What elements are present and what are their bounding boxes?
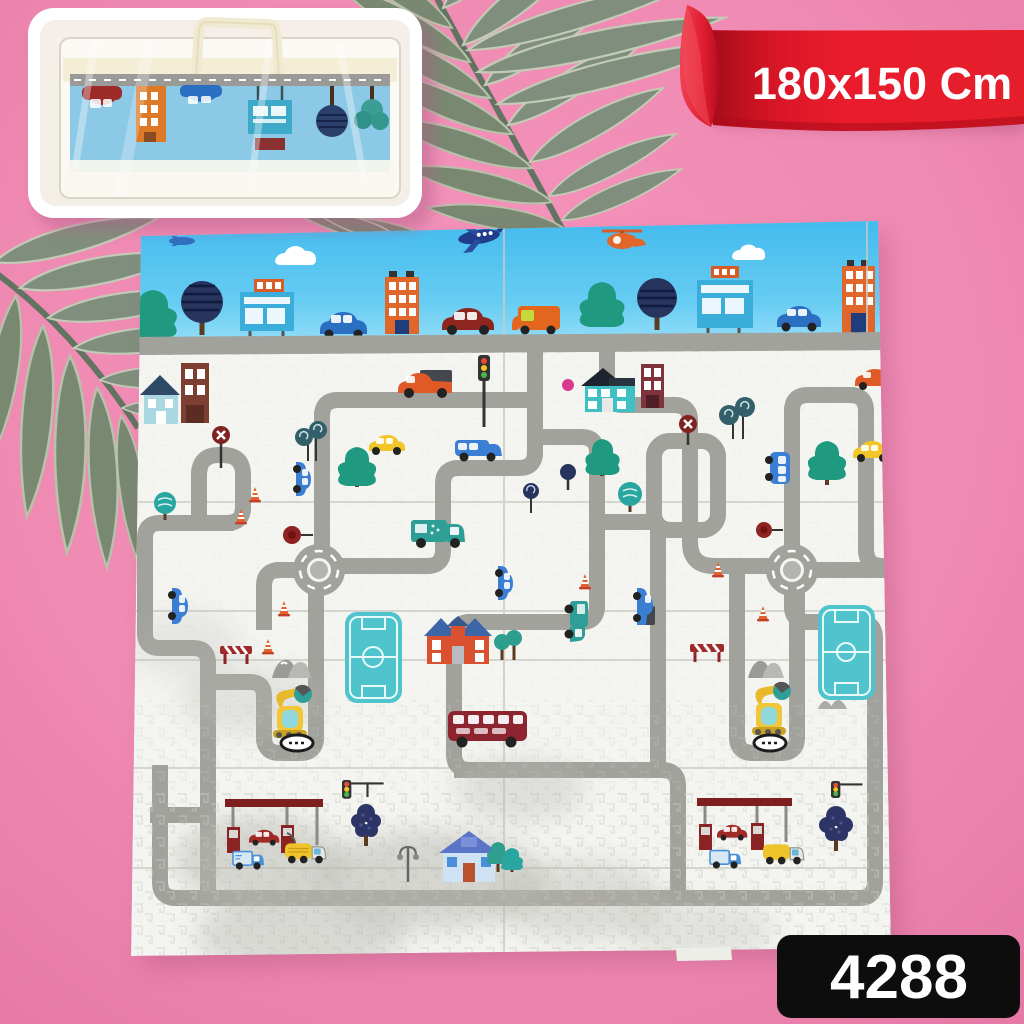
svg-text:180x150 Cm: 180x150 Cm bbox=[752, 58, 1012, 109]
svg-text:4288: 4288 bbox=[830, 943, 968, 1012]
